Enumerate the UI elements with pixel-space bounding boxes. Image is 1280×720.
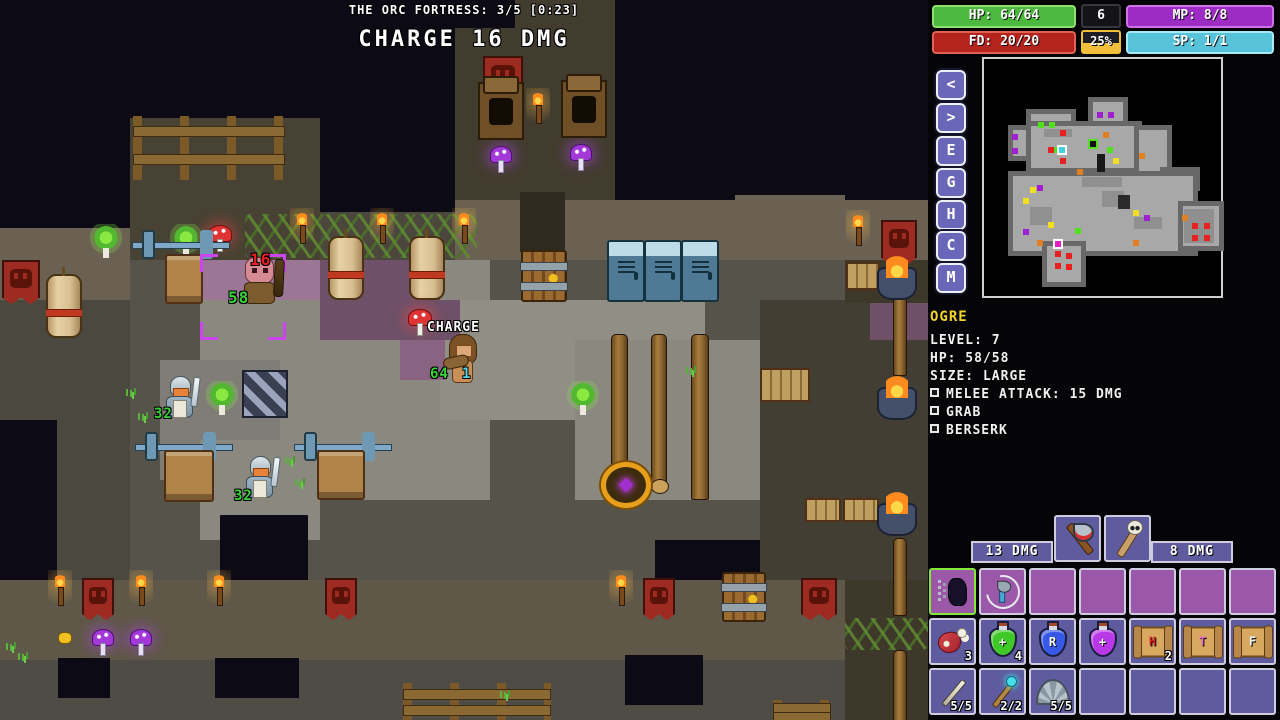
map-label: 32 bbox=[234, 488, 253, 504]
healing-potion[interactable]: +4 bbox=[979, 618, 1026, 665]
bag-sprite bbox=[409, 236, 445, 300]
shell-item[interactable]: 5/5 bbox=[1029, 668, 1076, 715]
game-screen: 16583232CHARGE641 THE ORC FORTRESS: 3/5 … bbox=[0, 0, 1280, 720]
map-label: CHARGE bbox=[427, 320, 480, 335]
bullet-icon bbox=[930, 406, 939, 415]
cauldron-sprite bbox=[874, 486, 920, 536]
locker-sprite[interactable] bbox=[681, 240, 719, 302]
charge-ability-icon bbox=[936, 576, 970, 608]
xp-indicator: 25% bbox=[1081, 30, 1121, 54]
stat-bar-fd: FD: 20/20 bbox=[932, 31, 1076, 54]
locker-sprite[interactable] bbox=[644, 240, 682, 302]
minimap-patch bbox=[1118, 195, 1130, 209]
minimap-room bbox=[1042, 241, 1086, 287]
slot-count: 2/2 bbox=[1000, 699, 1022, 713]
stat-bar-hp: HP: 64/64 bbox=[932, 5, 1076, 28]
minimap-dot bbox=[1139, 153, 1145, 159]
bag-sprite bbox=[328, 236, 364, 300]
minimap[interactable] bbox=[982, 57, 1223, 298]
minimap-target-dot bbox=[1088, 139, 1098, 149]
minimap-dot bbox=[1038, 122, 1044, 128]
map-region bbox=[58, 658, 110, 698]
bag-sprite bbox=[46, 274, 82, 338]
nav-button-next[interactable]: > bbox=[936, 103, 966, 133]
minimap-dot bbox=[1060, 130, 1066, 136]
throne-sprite bbox=[478, 82, 524, 140]
r-potion-icon: R bbox=[1039, 627, 1067, 657]
minimap-dot bbox=[1023, 198, 1029, 204]
level-indicator: 6 bbox=[1081, 4, 1121, 28]
weapon-damage-label-right: 8 DMG bbox=[1151, 541, 1233, 563]
vine-sprite bbox=[845, 618, 928, 650]
map-label: 16 bbox=[250, 250, 271, 269]
minimap-dot bbox=[1012, 134, 1018, 140]
grass-sprite bbox=[126, 386, 138, 396]
monster-stat: HP: 58/58 bbox=[930, 351, 1274, 366]
monster-stat: SIZE: LARGE bbox=[930, 369, 1274, 384]
meat-item[interactable]: 3 bbox=[929, 618, 976, 665]
minimap-patch bbox=[1082, 177, 1122, 187]
map-label: 32 bbox=[154, 406, 173, 422]
minimap-dot bbox=[1107, 147, 1113, 153]
map-region bbox=[0, 420, 57, 580]
bullet-icon bbox=[930, 424, 939, 433]
stat-bar-sp: SP: 1/1 bbox=[1126, 31, 1274, 54]
minimap-dot bbox=[1103, 132, 1109, 138]
door-sprite[interactable] bbox=[722, 572, 766, 622]
minimap-dot bbox=[1113, 158, 1119, 164]
minimap-dot bbox=[1049, 122, 1055, 128]
minimap-dot bbox=[1055, 263, 1061, 269]
map-region bbox=[845, 580, 928, 720]
action-announcement: CHARGE 16 DMG bbox=[0, 27, 928, 52]
torch-sprite bbox=[48, 570, 72, 612]
throne-sprite bbox=[561, 80, 607, 138]
slot-count: 5/5 bbox=[950, 699, 972, 713]
minimap-patch bbox=[1097, 154, 1105, 172]
item-slot-2-7[interactable] bbox=[1229, 668, 1276, 715]
minimap-dot bbox=[1108, 112, 1114, 118]
game-map[interactable]: 16583232CHARGE641 bbox=[0, 0, 928, 720]
pole2-sprite bbox=[651, 334, 667, 484]
minimap-patch bbox=[1044, 129, 1072, 137]
pole-sprite bbox=[691, 334, 709, 500]
minimap-dot bbox=[1133, 210, 1139, 216]
torch-sprite bbox=[846, 210, 870, 252]
slot-count: 4 bbox=[1015, 649, 1022, 663]
torch-sprite bbox=[129, 570, 153, 612]
bench-sprite bbox=[164, 450, 214, 502]
map-region bbox=[220, 515, 308, 580]
minimap-dot bbox=[1182, 215, 1188, 221]
ability-slot-5[interactable] bbox=[1129, 568, 1176, 615]
grass-sprite bbox=[295, 476, 307, 486]
pole-sprite bbox=[893, 296, 907, 376]
scroll-h[interactable]: H2 bbox=[1129, 618, 1176, 665]
item-slot-2-5[interactable] bbox=[1129, 668, 1176, 715]
fence-sprite bbox=[773, 700, 831, 720]
minimap-dot bbox=[1055, 251, 1061, 257]
r-potion[interactable]: R bbox=[1029, 618, 1076, 665]
minimap-dot bbox=[1133, 240, 1139, 246]
minimap-dot bbox=[1066, 253, 1072, 259]
minimap-dot bbox=[1075, 228, 1081, 234]
minimap-player-dot bbox=[1057, 145, 1067, 155]
mushroomp-sprite bbox=[486, 141, 514, 175]
mushroomp-sprite bbox=[88, 624, 116, 658]
tree-sprite bbox=[204, 381, 240, 417]
nav-button-M[interactable]: M bbox=[936, 263, 966, 293]
skull-club-weapon[interactable] bbox=[1104, 515, 1151, 562]
grass-sprite bbox=[6, 640, 18, 650]
stairs-sprite[interactable] bbox=[242, 370, 288, 418]
grass-sprite bbox=[686, 364, 698, 374]
locker-sprite[interactable] bbox=[607, 240, 645, 302]
map-label: 1 bbox=[462, 366, 471, 382]
minimap-dot bbox=[1204, 223, 1210, 229]
minimap-dot bbox=[1048, 147, 1054, 153]
map-region bbox=[520, 192, 565, 252]
cauldron-sprite bbox=[874, 250, 920, 300]
monster-ability: GRAB bbox=[930, 405, 1274, 420]
gold-sprite bbox=[58, 632, 72, 644]
mushroomp-sprite bbox=[566, 139, 594, 173]
minimap-dot bbox=[1192, 235, 1198, 241]
monster-info-panel: OGRE LEVEL: 7HP: 58/58SIZE: LARGE MELEE … bbox=[930, 309, 1274, 441]
map-label: 64 bbox=[430, 366, 449, 382]
stat-bar-mp: MP: 8/8 bbox=[1126, 5, 1274, 28]
minimap-dot bbox=[1192, 223, 1198, 229]
map-region bbox=[625, 655, 703, 705]
nav-button-C[interactable]: C bbox=[936, 231, 966, 261]
slot-count: 5/5 bbox=[1050, 699, 1072, 713]
minimap-dot bbox=[1204, 235, 1210, 241]
rack-sprite bbox=[760, 368, 810, 402]
torch-sprite bbox=[452, 208, 476, 250]
cauldron-sprite bbox=[874, 370, 920, 420]
torch-sprite bbox=[370, 208, 394, 250]
map-region bbox=[215, 658, 299, 698]
throw-axe-ability[interactable] bbox=[979, 568, 1026, 615]
location-label: THE ORC FORTRESS: 3/5 [0:23] bbox=[0, 3, 928, 17]
monster-name: OGRE bbox=[930, 309, 1274, 325]
minimap-dot bbox=[1030, 187, 1036, 193]
nav-button-H[interactable]: H bbox=[936, 200, 966, 230]
fence-sprite bbox=[133, 116, 285, 180]
minimap-dot bbox=[1077, 169, 1083, 175]
healing-potion-icon: + bbox=[989, 627, 1017, 657]
basket-sprite[interactable] bbox=[601, 462, 651, 508]
bench-sprite bbox=[317, 450, 365, 500]
scroll-f-icon: F bbox=[1233, 626, 1273, 657]
mushroomp-sprite bbox=[126, 624, 154, 658]
scroll-f[interactable]: F bbox=[1229, 618, 1276, 665]
minimap-dot bbox=[1097, 112, 1103, 118]
minimap-dot bbox=[1023, 229, 1029, 235]
minimap-dot bbox=[1066, 264, 1072, 270]
wand-item[interactable]: 5/5 bbox=[929, 668, 976, 715]
minimap-item-dot bbox=[1053, 239, 1063, 249]
throw-axe-ability-icon bbox=[979, 568, 1026, 615]
torch-sprite bbox=[207, 570, 231, 612]
ability-slot-3[interactable] bbox=[1029, 568, 1076, 615]
staff-item[interactable]: 2/2 bbox=[979, 668, 1026, 715]
scroll-t-icon: T bbox=[1183, 626, 1223, 657]
charge-ability[interactable] bbox=[929, 568, 976, 615]
nav-button-E[interactable]: E bbox=[936, 136, 966, 166]
nav-button-G[interactable]: G bbox=[936, 168, 966, 198]
meat-item-icon bbox=[938, 628, 968, 656]
monster-ability: MELEE ATTACK: 15 DMG bbox=[930, 387, 1274, 402]
weapon-damage-label-left: 13 DMG bbox=[971, 541, 1053, 563]
slot-count: 2 bbox=[1165, 649, 1172, 663]
torch-sprite bbox=[609, 570, 633, 612]
fence-sprite bbox=[403, 683, 551, 720]
monster-stat: LEVEL: 7 bbox=[930, 333, 1274, 348]
door-sprite[interactable] bbox=[521, 250, 567, 302]
item-slot-2-4[interactable] bbox=[1079, 668, 1126, 715]
ability-slot-7[interactable] bbox=[1229, 568, 1276, 615]
axe-weapon[interactable] bbox=[1054, 515, 1101, 562]
ability-slot-6[interactable] bbox=[1179, 568, 1226, 615]
tree-sprite bbox=[88, 224, 124, 260]
grass-sprite bbox=[500, 688, 512, 698]
monster-ability: BERSERK bbox=[930, 423, 1274, 438]
bench-sprite bbox=[165, 254, 203, 304]
rack-sprite bbox=[805, 498, 841, 522]
tree-sprite bbox=[565, 381, 601, 417]
torch-sprite bbox=[526, 88, 550, 130]
ability-slot-4[interactable] bbox=[1079, 568, 1126, 615]
pole-sprite bbox=[893, 538, 907, 616]
minimap-dot bbox=[1060, 158, 1066, 164]
skull-club-weapon-icon bbox=[1110, 520, 1146, 558]
minimap-dot bbox=[1012, 148, 1018, 154]
slot-count: 3 bbox=[965, 649, 972, 663]
pole-sprite bbox=[893, 650, 907, 720]
grass-sprite bbox=[285, 454, 297, 464]
nav-button-prev[interactable]: < bbox=[936, 70, 966, 100]
item-slot-2-6[interactable] bbox=[1179, 668, 1226, 715]
grass-sprite bbox=[138, 410, 150, 420]
minimap-dot bbox=[1048, 222, 1054, 228]
magic-potion-icon: + bbox=[1089, 627, 1117, 657]
minimap-dot bbox=[1144, 215, 1150, 221]
grass-sprite bbox=[18, 650, 30, 660]
map-label: 58 bbox=[228, 288, 249, 307]
magic-potion[interactable]: + bbox=[1079, 618, 1126, 665]
scroll-t[interactable]: T bbox=[1179, 618, 1226, 665]
minimap-dot bbox=[1037, 240, 1043, 246]
torch-sprite bbox=[290, 208, 314, 250]
minimap-dot bbox=[1037, 185, 1043, 191]
bullet-icon bbox=[930, 388, 939, 397]
axe-weapon-icon bbox=[1060, 520, 1096, 558]
